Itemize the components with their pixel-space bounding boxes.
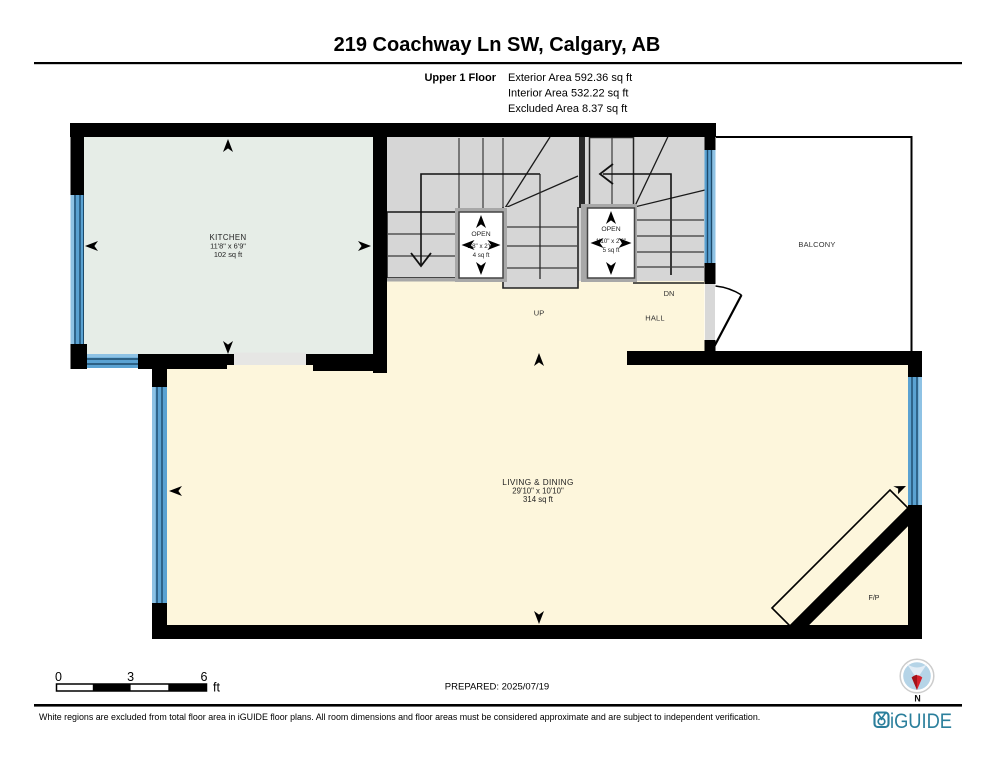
svg-text:6: 6 (201, 670, 208, 684)
svg-text:OPEN: OPEN (601, 226, 620, 233)
svg-text:219 Coachway Ln SW, Calgary, A: 219 Coachway Ln SW, Calgary, AB (334, 34, 661, 56)
svg-text:5 sq ft: 5 sq ft (603, 247, 620, 254)
svg-text:102 sq ft: 102 sq ft (214, 250, 242, 259)
svg-text:0: 0 (55, 670, 62, 684)
svg-text:PREPARED: 2025/07/19: PREPARED: 2025/07/19 (445, 682, 549, 693)
svg-text:OPEN: OPEN (471, 231, 490, 238)
svg-text:N: N (914, 694, 920, 704)
svg-text:White regions are excluded fro: White regions are excluded from total fl… (39, 712, 760, 722)
svg-text:BALCONY: BALCONY (798, 240, 835, 249)
svg-text:3: 3 (127, 670, 134, 684)
svg-text:iGUIDE: iGUIDE (890, 710, 952, 733)
svg-text:ft: ft (213, 681, 220, 695)
svg-text:UP: UP (534, 309, 544, 318)
svg-text:DN: DN (664, 289, 675, 298)
svg-text:HALL: HALL (645, 314, 665, 323)
svg-text:Upper 1 Floor: Upper 1 Floor (424, 72, 496, 84)
svg-text:F/P: F/P (869, 595, 880, 602)
svg-text:Exterior Area 592.36 sq ft: Exterior Area 592.36 sq ft (508, 72, 632, 84)
svg-text:Interior Area 532.22 sq ft: Interior Area 532.22 sq ft (508, 88, 628, 100)
svg-text:314 sq ft: 314 sq ft (523, 495, 554, 504)
svg-text:4 sq ft: 4 sq ft (473, 252, 490, 259)
svg-text:Excluded Area 8.37 sq ft: Excluded Area 8.37 sq ft (508, 103, 627, 115)
